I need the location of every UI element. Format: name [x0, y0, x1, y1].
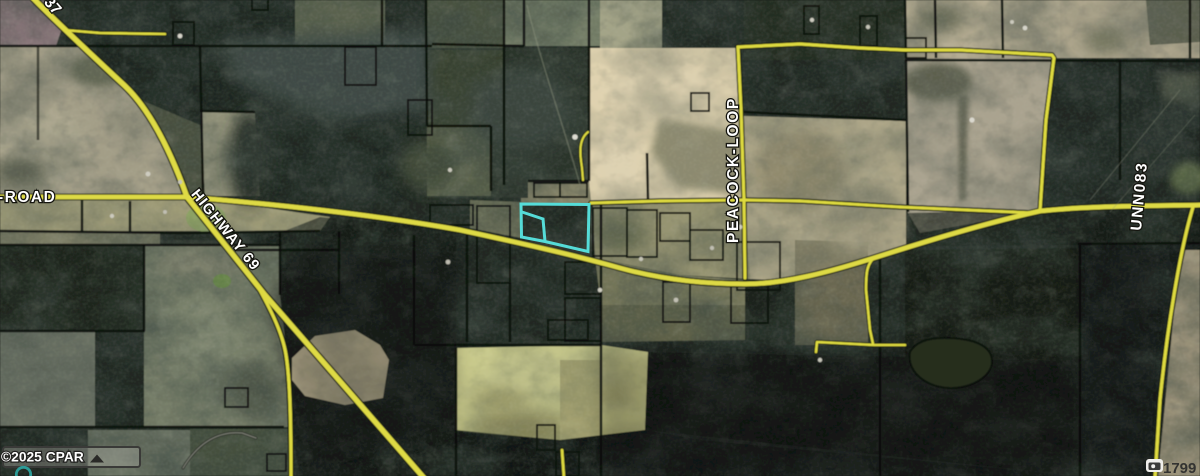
svg-text:©2025 CPAR: ©2025 CPAR: [1, 450, 84, 465]
svg-text:PEACOCK-LOOP: PEACOCK-LOOP: [725, 97, 742, 243]
svg-text:1799: 1799: [1163, 460, 1196, 476]
svg-text:-ROAD: -ROAD: [0, 189, 56, 206]
